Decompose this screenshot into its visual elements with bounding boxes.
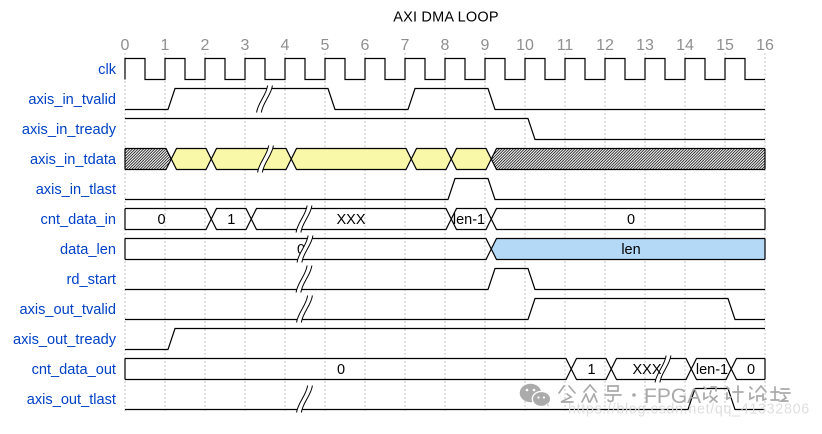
svg-text:14: 14 [676,37,694,54]
svg-text:clk: clk [98,62,117,78]
svg-text:7: 7 [401,37,410,54]
svg-text:11: 11 [557,37,574,54]
svg-text:9: 9 [481,37,490,54]
svg-text:axis_in_tvalid: axis_in_tvalid [28,92,116,108]
svg-text:8: 8 [441,37,450,54]
svg-text:6: 6 [361,37,370,54]
svg-text:AXI DMA LOOP: AXI DMA LOOP [393,10,499,26]
svg-text:axis_in_tready: axis_in_tready [22,122,117,138]
svg-text:0: 0 [337,362,345,378]
svg-text:XXX: XXX [632,362,661,378]
svg-text:1: 1 [161,37,170,54]
svg-text:3: 3 [241,37,250,54]
svg-text:0: 0 [747,362,755,378]
svg-text:cnt_data_in: cnt_data_in [41,212,116,228]
svg-text:len: len [621,242,640,258]
svg-text:5: 5 [321,37,330,54]
svg-text:13: 13 [636,37,654,54]
svg-text:12: 12 [596,37,614,54]
svg-text:FPGA: FPGA [644,385,701,408]
svg-text:4: 4 [281,37,290,54]
svg-text:10: 10 [516,37,534,54]
svg-text:1: 1 [227,212,235,228]
svg-text:rd_start: rd_start [67,272,116,288]
svg-text:data_len: data_len [60,242,116,258]
svg-text:16: 16 [756,37,774,54]
svg-text:0: 0 [157,212,165,228]
svg-text:0: 0 [121,37,130,54]
svg-text:len-1: len-1 [696,362,728,378]
svg-text:axis_out_tvalid: axis_out_tvalid [19,302,116,318]
svg-text:len-1: len-1 [453,212,485,228]
svg-text:2: 2 [201,37,210,54]
svg-text:0: 0 [627,212,635,228]
svg-text:cnt_data_out: cnt_data_out [32,362,116,378]
svg-text:15: 15 [716,37,734,54]
svg-text:axis_in_tdata: axis_in_tdata [30,152,117,168]
svg-text:1: 1 [587,362,595,378]
svg-text:axis_out_tready: axis_out_tready [13,332,117,348]
svg-text:axis_in_tlast: axis_in_tlast [36,182,116,198]
svg-text:XXX: XXX [336,212,365,228]
svg-text:axis_out_tlast: axis_out_tlast [27,392,116,408]
